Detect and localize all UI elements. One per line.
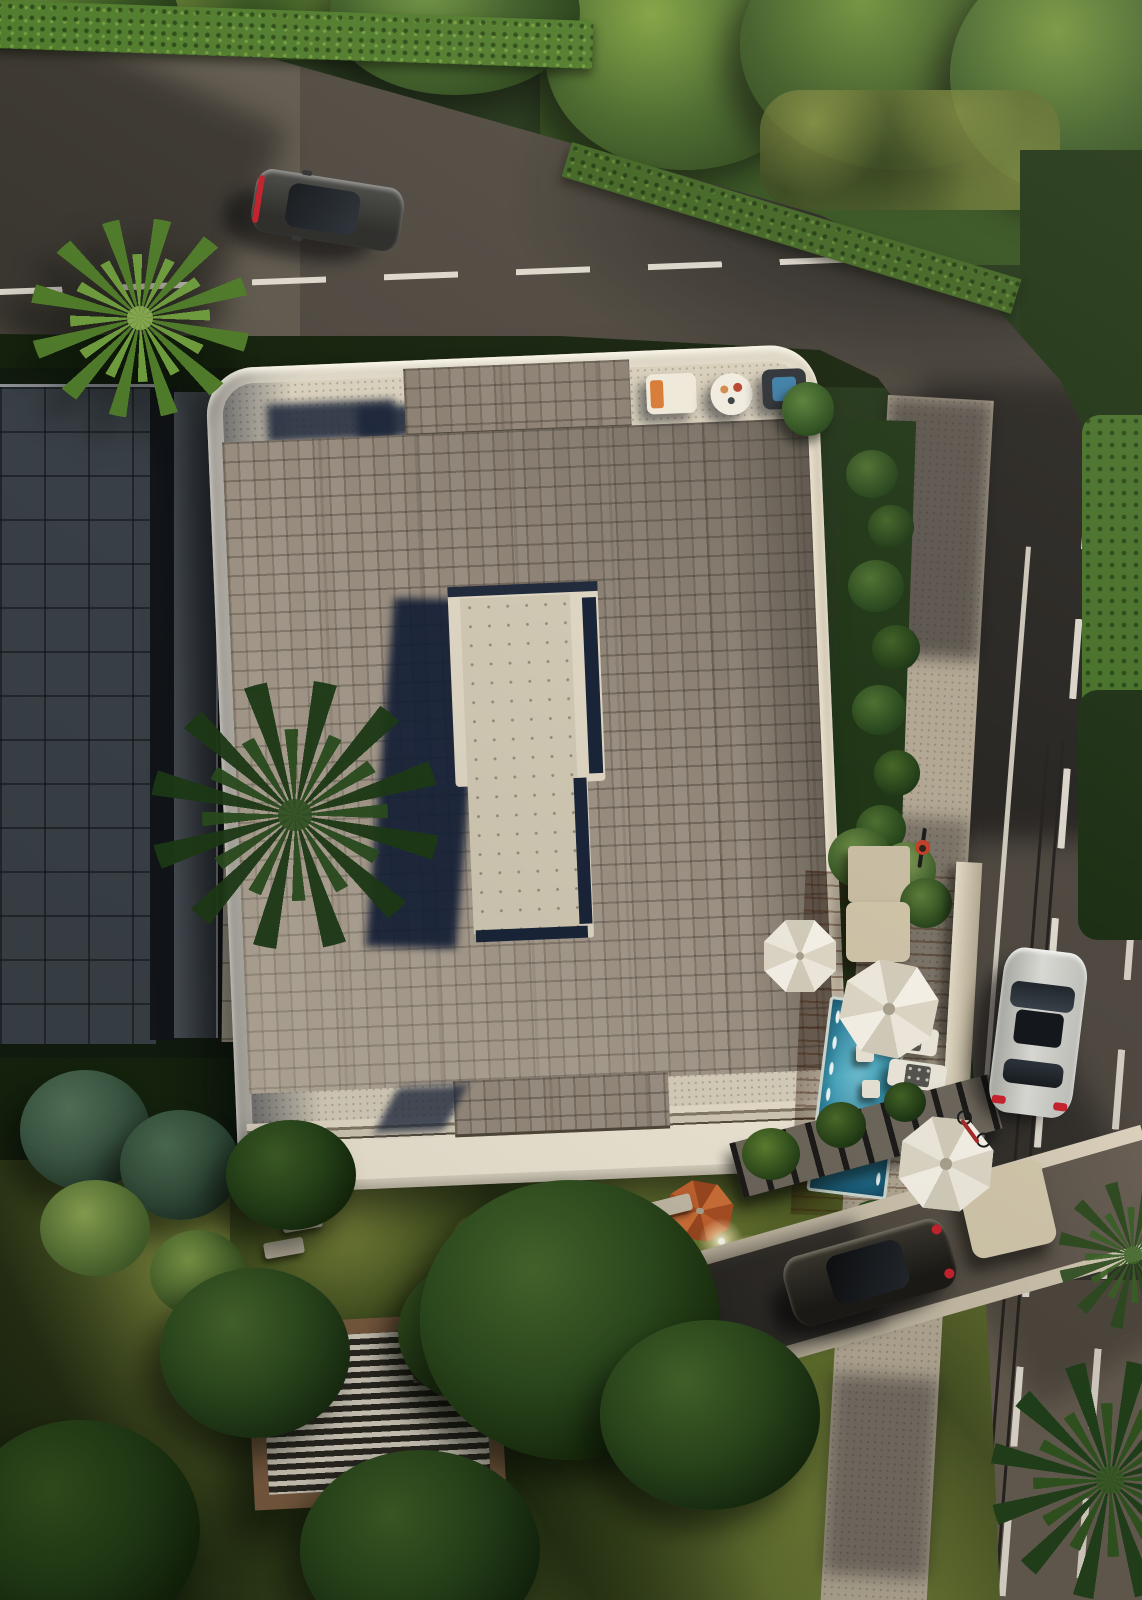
palm-tree-top-left [30, 218, 250, 418]
villa-raised-roof-step [403, 359, 632, 436]
car2-taillight-left [991, 1095, 1006, 1105]
skylight-deck-dots [460, 594, 584, 934]
trees-right-edge-dark [1078, 690, 1142, 940]
bush-east-1 [846, 450, 898, 498]
side-table-2 [862, 1080, 880, 1098]
bush-east-5 [852, 685, 906, 735]
bush-east-3 [848, 560, 904, 612]
walkway-plant-2 [816, 1102, 866, 1148]
car2-roof-glass [1013, 1009, 1065, 1049]
terrace-potted-plant [782, 382, 834, 436]
walkway-plant-3 [884, 1082, 926, 1122]
aerial-villa-scene [0, 0, 1142, 1600]
terrace-sofa-cushion [650, 380, 664, 409]
tree-over-villa-corner [226, 1120, 356, 1230]
cyclist-on-sidewalk [905, 826, 941, 872]
villa-skylight [447, 581, 612, 947]
tree-over-pergola [160, 1268, 350, 1438]
bright-bush-left-1 [40, 1180, 150, 1276]
villa-roof-notch-bottom [453, 1072, 670, 1137]
palm-tree-left-dark [150, 680, 440, 950]
car2-taillight-right [1053, 1102, 1068, 1112]
bush-east-6 [874, 750, 920, 796]
sidewalk-shadow-3 [822, 1373, 939, 1579]
pool-cabana [846, 902, 910, 962]
hedge-right-edge-sunlit [1082, 415, 1142, 715]
bush-east-2 [868, 505, 914, 549]
walkway-plant-1 [742, 1128, 800, 1180]
grass-top-right [760, 90, 1060, 210]
bush-east-4 [872, 625, 920, 671]
tree-garden-south-east [600, 1320, 820, 1510]
